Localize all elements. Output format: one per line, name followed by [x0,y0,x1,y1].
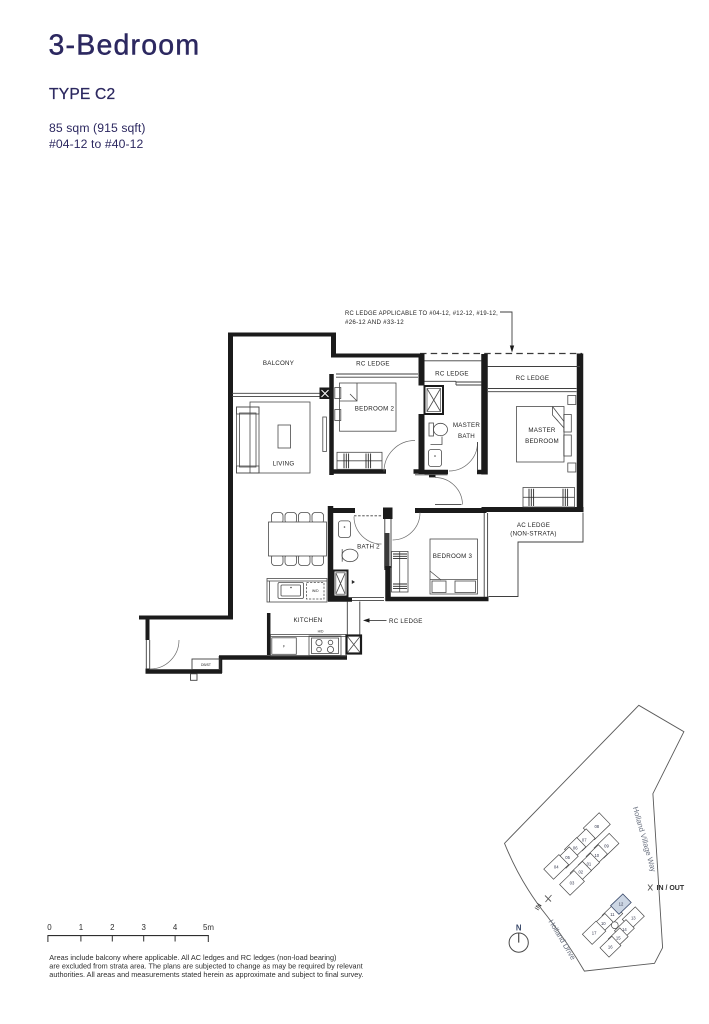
svg-text:N: N [516,924,522,933]
svg-text:H/D: H/D [318,629,324,633]
svg-text:AC LEDGE: AC LEDGE [517,522,550,529]
svg-text:07: 07 [582,837,587,842]
svg-text:#26-12 AND #33-12: #26-12 AND #33-12 [345,319,404,326]
svg-text:3-Bedroom: 3-Bedroom [49,30,201,62]
svg-text:5m: 5m [203,923,214,932]
svg-text:TYPE C2: TYPE C2 [49,86,115,103]
svg-text:10: 10 [594,853,599,858]
svg-text:05: 05 [565,855,570,860]
svg-text:BALCONY: BALCONY [263,360,294,367]
svg-text:02: 02 [578,870,583,875]
svg-text:BATH 2: BATH 2 [357,544,380,551]
svg-text:1: 1 [79,923,83,932]
svg-text:IN / OUT: IN / OUT [657,885,685,892]
svg-text:MASTER: MASTER [453,422,481,429]
svg-text:RC LEDGE: RC LEDGE [516,375,550,382]
svg-text:16: 16 [608,944,613,949]
svg-text:RC LEDGE APPLICABLE TO #04-12,: RC LEDGE APPLICABLE TO #04-12, #12-12, #… [345,310,498,317]
svg-text:10: 10 [601,921,606,926]
svg-text:08: 08 [594,824,599,829]
svg-text:F: F [283,645,285,649]
svg-text:12: 12 [619,902,624,907]
svg-text:11: 11 [610,912,615,917]
svg-text:3: 3 [142,923,147,932]
svg-text:04: 04 [554,865,559,870]
svg-text:09: 09 [604,843,609,848]
svg-text:BATH: BATH [458,433,475,440]
svg-text:0: 0 [47,923,52,932]
svg-text:KITCHEN: KITCHEN [294,617,323,624]
svg-text:RC LEDGE: RC LEDGE [389,618,423,625]
svg-text:03: 03 [570,881,575,886]
svg-text:4: 4 [173,923,178,932]
svg-text:BEDROOM 2: BEDROOM 2 [355,406,395,413]
svg-text:DB/ST: DB/ST [201,663,211,667]
svg-text:LIVING: LIVING [273,461,295,468]
svg-text:13: 13 [631,915,636,920]
svg-text:#04-12 to #40-12: #04-12 to #40-12 [49,137,144,151]
svg-text:2: 2 [110,923,114,932]
svg-text:BEDROOM: BEDROOM [525,438,559,445]
svg-text:85 sqm (915 sqft): 85 sqm (915 sqft) [49,121,146,135]
svg-text:RC LEDGE: RC LEDGE [435,371,469,378]
svg-text:MASTER: MASTER [528,427,556,434]
svg-text:BEDROOM 3: BEDROOM 3 [433,553,473,560]
svg-text:15: 15 [616,935,621,940]
svg-text:01: 01 [587,861,592,866]
svg-text:(NON-STRATA): (NON-STRATA) [510,531,556,538]
svg-text:17: 17 [592,930,597,935]
svg-text:06: 06 [573,846,578,851]
svg-text:RC LEDGE: RC LEDGE [356,361,390,368]
svg-text:authorities. All areas and mea: authorities. All areas and measurements … [49,970,363,979]
svg-text:14: 14 [622,927,627,932]
svg-text:W/D: W/D [312,589,319,593]
